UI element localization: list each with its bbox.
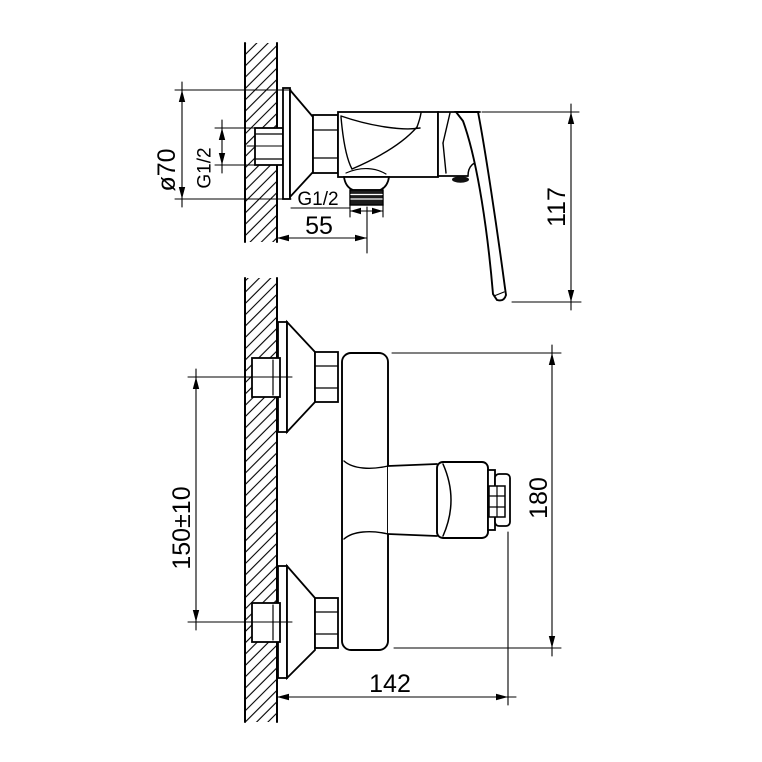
lower-nut (315, 598, 338, 648)
dim-label-inlet-spacing: 150±10 (168, 486, 196, 569)
faucet-body-front (342, 353, 388, 650)
shower-outlet (344, 177, 389, 205)
dim-label-height-180: 180 (525, 477, 553, 519)
dim-label-depth-142: 142 (369, 670, 411, 698)
cartridge-housing (437, 462, 488, 538)
wall-section-front (245, 278, 277, 722)
dim-label-inlet-thread: G1/2 (195, 147, 216, 188)
dim-label-outlet-thread: G1/2 (297, 189, 338, 210)
pivot-shadow (452, 176, 469, 182)
faucet-installation-drawing: ø70 G1/2 G1/2 55 (0, 0, 762, 762)
mounting-nut-side (313, 115, 338, 173)
technical-drawing-page: ø70 G1/2 G1/2 55 (0, 0, 762, 762)
dim-label-flange-diameter: ø70 (153, 148, 181, 191)
outlet-thread (350, 190, 383, 205)
upper-nut (315, 352, 338, 402)
dim-label-outlet-offset: 55 (305, 212, 333, 240)
cartridge-assembly-front (388, 462, 510, 538)
dim-label-height-117: 117 (543, 187, 571, 227)
